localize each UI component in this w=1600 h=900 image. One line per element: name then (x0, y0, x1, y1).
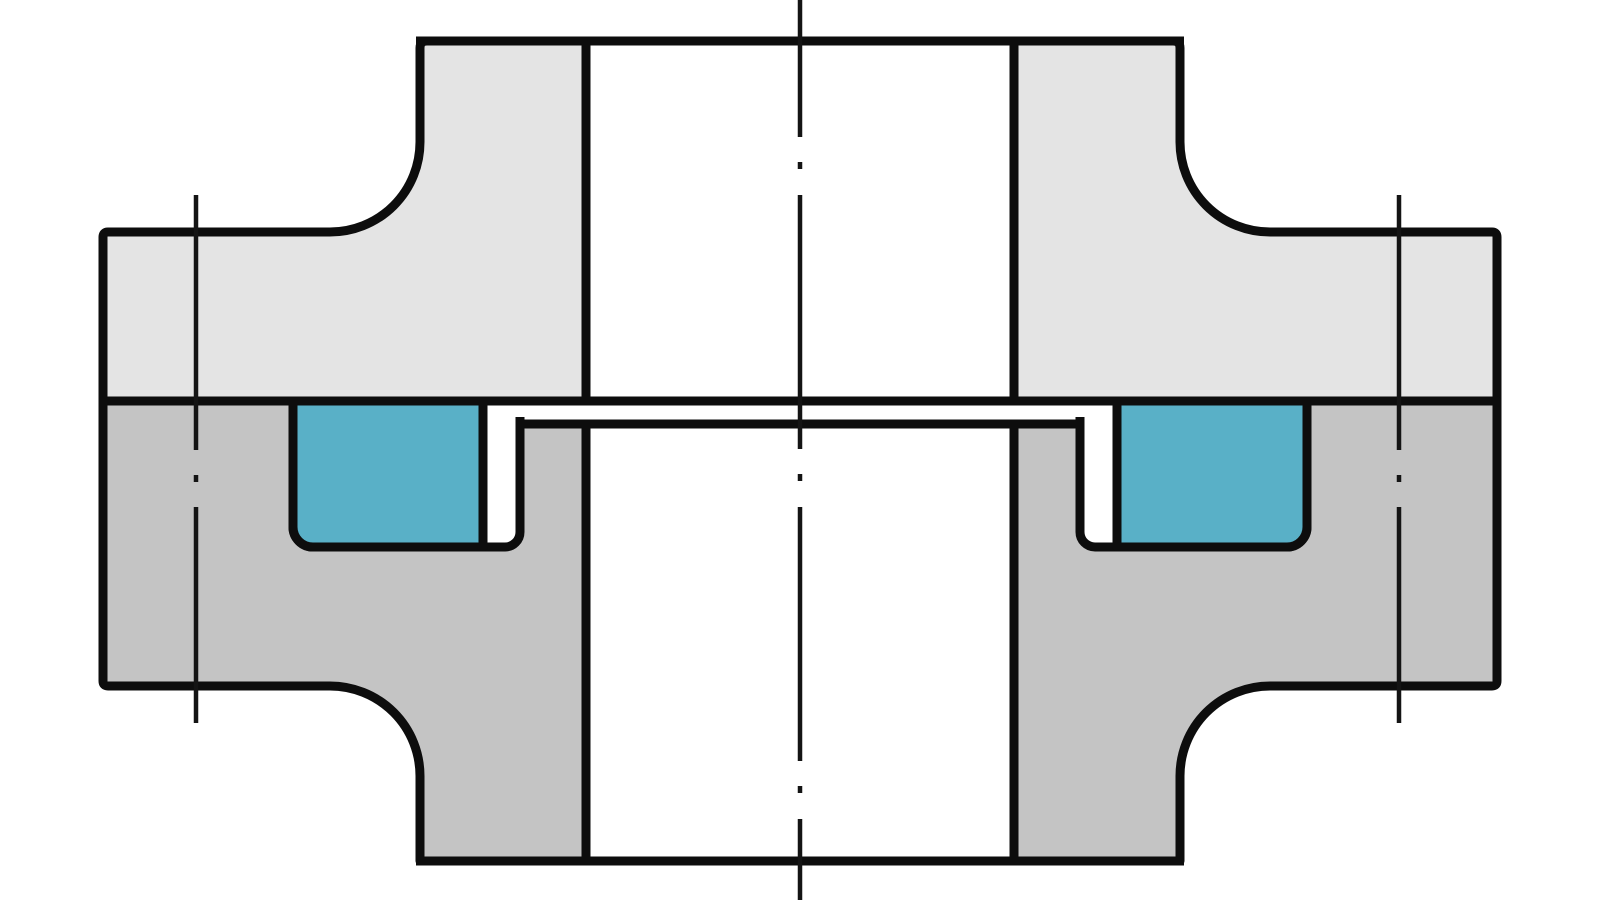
drawing-canvas (0, 0, 1600, 900)
upper-flange-right-section (1014, 41, 1497, 401)
upper-flange-left-section (103, 41, 586, 401)
gasket-left (293, 401, 483, 547)
flange-connection-diagram (0, 0, 1600, 900)
gasket-right (1117, 401, 1307, 547)
